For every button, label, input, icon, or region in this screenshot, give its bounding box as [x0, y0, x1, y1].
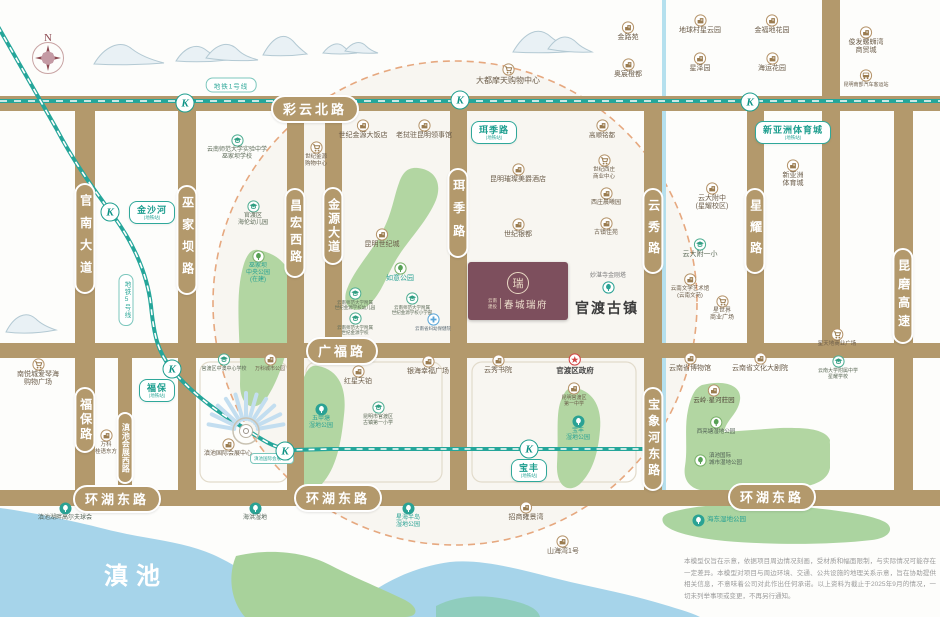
road-guangfu: [0, 343, 940, 358]
building-icon: [263, 352, 276, 365]
property-location-map: N 金路苑奥宸橙都地球村星云园金福地花园星泽园海运花园俊发螺蛳湾 商贸城昆明南部…: [0, 0, 940, 617]
marker-guandu-no1-middle: 昆明官渡区 第一中学: [561, 381, 586, 407]
station-badge-1: 新亚洲体育城(地铁站): [755, 121, 831, 144]
brand-line2: 建投: [488, 304, 497, 310]
marker-nanyuecheng: 南悦城爱琴海 购物广场: [17, 357, 59, 388]
marker-label: 金福地花园: [755, 27, 790, 35]
road-pill-2: 环湖东路: [73, 485, 161, 513]
marker-wujiaba-park: 巫家坝 中央公园 (在建): [246, 249, 270, 285]
tree-teal-solid-icon: [314, 402, 327, 415]
marker-xizhuang-chenxi: 西庄晨曦园: [591, 186, 621, 207]
marker-label: 云秀书院: [484, 367, 512, 375]
tree-teal-solid-icon: [692, 513, 705, 526]
marker-hongxing-tianbo: 红星天铂: [344, 364, 372, 386]
brand-line1: 云南: [488, 298, 497, 304]
station-sub: (地铁站): [479, 135, 509, 140]
building-icon: [512, 162, 525, 175]
building-icon: [694, 13, 707, 26]
road-pill-4: 环湖东路: [728, 483, 816, 511]
marker-yunda-fuzhong: 云大附中 (星耀校区): [696, 181, 729, 212]
marker-haiyun: 海运花园: [758, 51, 786, 73]
marker-label: 巫家坝 中央公园 (在建): [246, 263, 270, 285]
school-icon: [371, 400, 384, 413]
marker-label: 海运花园: [758, 65, 786, 73]
marker-shifan-wujiaba: 云南师范大学实验中学 巫家坝学校: [207, 133, 267, 161]
marker-expo-center: 滇池国际会展中心: [204, 437, 252, 458]
marker-label: 云南省妇幼保健院: [415, 326, 451, 331]
building-icon: [694, 51, 707, 64]
cart-icon: [597, 153, 610, 166]
marker-ruyi-park: 如意公园: [386, 261, 414, 283]
metro-line5-label: 地铁5号线: [119, 274, 134, 326]
marker-junfa: 俊发螺蛳湾 商贸城: [849, 25, 884, 56]
tree-green-icon: [694, 453, 707, 466]
school-icon: [349, 311, 362, 324]
marker-label: 云南省博物馆: [669, 365, 711, 373]
metro-k-mark-1: K: [451, 91, 470, 110]
road-pill-v-0: 官南大道: [74, 183, 95, 294]
road-pill-v-8: 福保路: [74, 387, 95, 453]
marker-baofeng-park: 宝丰 湿地公园: [566, 414, 590, 442]
marker-yinhai-plaza: 银海幸福广场: [407, 354, 449, 376]
marker-label: 奥宸橙都: [614, 71, 642, 79]
marker-jinyuan-mall: 世纪金源 购物中心: [305, 140, 327, 167]
school-icon: [406, 291, 419, 304]
road-pill-0: 彩云北路: [271, 95, 359, 123]
seal-character: 瑞: [513, 275, 524, 291]
marker-label: 昆明璀璨美爵酒店: [490, 176, 546, 184]
tree-teal-solid-icon: [401, 501, 414, 514]
road-pill-v-7: 昆磨高速: [892, 248, 913, 344]
marker-label: 地球村星云园: [679, 27, 721, 35]
building-icon: [596, 118, 609, 131]
marker-label: 世纪西庄 商业中心: [593, 167, 615, 180]
marker-laowo-consulate: 老挝驻昆明领事馆: [396, 118, 452, 140]
marker-xinghai-peninsula: 星海半岛 湿地公园: [396, 501, 420, 529]
marker-label: 昆明官渡区 第一中学: [561, 395, 586, 407]
marker-label: 世纪银都: [504, 231, 532, 239]
station-badge-4: 宝丰(地铁站): [511, 459, 547, 482]
building-icon: [787, 158, 800, 171]
marker-label: 滇池湖畔高尔夫球会: [38, 515, 92, 522]
marker-label: 云南师范大学实验中学 巫家坝学校: [207, 147, 267, 161]
station-name: 福保: [147, 383, 167, 393]
building-icon: [557, 534, 570, 547]
marker-label: 官渡区中澳中心学校: [201, 366, 246, 372]
marker-yunda-xingyao: 云南大学附属中学 星耀学校: [818, 354, 858, 380]
marker-xingshijie: 星世界 商业广场: [710, 294, 734, 322]
building-icon: [684, 351, 697, 364]
disclaimer-text: 本模型仅旨在示意，依据项目周边情况刻画，受材质和幅面限制，与实际情况可能存在一定…: [684, 556, 936, 603]
marker-label: 宝丰 湿地公园: [566, 428, 590, 442]
building-icon: [352, 364, 365, 377]
marker-sjjy-school: 云南师范大学附属 世纪金源学校: [337, 311, 373, 336]
marker-label: 星泽园: [690, 65, 711, 73]
marker-label: 滇池国际 城市湿地公园: [709, 453, 742, 466]
building-icon: [492, 353, 505, 366]
marker-label: 五甲塘 湿地公园: [309, 416, 333, 430]
marker-label: 老挝驻昆明领事馆: [396, 132, 452, 140]
school-icon: [349, 286, 362, 299]
building-icon: [683, 272, 696, 285]
marker-label: 官渡区 海伦幼儿园: [238, 213, 268, 227]
marker-wanke-park: 万科城市公园: [255, 352, 285, 372]
marker-jinfudi: 金福地花园: [755, 13, 790, 35]
building-icon: [99, 428, 112, 441]
road-pill-v-3: 金源大道: [322, 187, 343, 265]
marker-label: 红星天铂: [344, 378, 372, 386]
marker-wujiatang-park: 五甲塘 湿地公园: [309, 402, 333, 430]
marker-yunxiu-shuyuan: 云秀书院: [484, 353, 512, 375]
road-pill-v-10: 宝象河东路: [642, 387, 663, 491]
project-marker-chuncheng-ruifu: 瑞 云南 建投 春城瑞府: [468, 262, 568, 320]
building-icon: [357, 118, 370, 131]
building-icon: [707, 383, 720, 396]
marker-guzhen-primary: 昆明市官渡区 古镇第一小学: [363, 400, 393, 426]
brand-divider: [500, 298, 501, 309]
marker-label: 官渡区政府: [556, 366, 594, 375]
station-sub: (地铁站): [147, 393, 167, 398]
road-pill-1: 广福路: [306, 337, 378, 365]
metro-line1-label: 地铁1号线: [206, 78, 257, 93]
metro-k-mark-3: K: [101, 203, 120, 222]
school-icon: [217, 352, 230, 365]
marker-hailun-kindergarten: 官渡区 海伦幼儿园: [238, 199, 268, 227]
marker-label: 新亚洲 体育城: [783, 172, 804, 189]
marker-xingtiandi: 星天地商业广场: [818, 327, 857, 348]
project-name: 春城瑞府: [504, 297, 548, 311]
cart-icon: [309, 140, 322, 153]
marker-label: 云岭·星河莊园: [693, 397, 734, 405]
marker-dadu-mall: 大都摩天购物中心: [476, 62, 540, 86]
station-badge-2: 金沙河(地铁站): [129, 201, 175, 224]
metro-k-mark-0: K: [176, 94, 195, 113]
road-pill-v-4: 珥季路: [447, 168, 468, 258]
marker-label: 云大附一小: [683, 251, 718, 259]
metro-k-mark-6: K: [520, 440, 539, 459]
marker-yunda-fuyixiao: 云大附一小: [683, 237, 718, 259]
road-pill-v-1: 巫家坝路: [176, 185, 197, 295]
building-icon: [622, 57, 635, 70]
marker-label: 万科 桂语东方: [95, 442, 117, 455]
metro-k-mark-4: K: [163, 360, 182, 379]
road-unnamed-east: [822, 0, 840, 358]
marker-diqiucun: 地球村星云园: [679, 13, 721, 35]
marker-zhaoshang: 招商雍景湾: [509, 500, 544, 522]
building-icon: [520, 500, 533, 513]
marker-label: 金路苑: [618, 34, 639, 42]
building-icon: [422, 354, 435, 367]
station-badge-3: 福保(地铁站): [139, 379, 175, 402]
marker-label: 海洪湿地: [243, 515, 267, 522]
marker-zhongao-school: 官渡区中澳中心学校: [201, 352, 246, 372]
cart-icon: [830, 327, 843, 340]
station-sub: (地铁站): [137, 215, 167, 220]
marker-label: 云南师范大学附属 世纪金源学校幼儿园: [335, 300, 376, 311]
marker-label: 山海湾1号: [547, 548, 579, 556]
compass-north-label: N: [44, 32, 52, 44]
marker-label: 星天地商业广场: [818, 341, 857, 348]
station-name: 宝丰: [519, 463, 539, 473]
marker-label: 西庄晨曦园: [591, 200, 621, 207]
marker-label: 滇池国际会展中心: [204, 451, 252, 458]
building-icon: [766, 51, 779, 64]
marker-xinyazhou-sports: 新亚洲 体育城: [783, 158, 804, 189]
marker-yunling-xinghe: 云岭·星河莊园: [693, 383, 734, 405]
bus-icon: [859, 68, 872, 81]
marker-label: 如意公园: [386, 275, 414, 283]
marker-label: 西亮塘湿地公园: [697, 429, 736, 436]
marker-xizhuang-center: 世纪西庄 商业中心: [593, 153, 615, 180]
brand-small: 云南 建投: [488, 298, 497, 309]
marker-haihong-wetland: 海洪湿地: [243, 501, 267, 522]
metro-k-mark-2: K: [741, 93, 760, 112]
marker-label: 云南文学艺术馆 (云南文苑): [671, 286, 710, 299]
building-icon: [705, 181, 718, 194]
marker-label: 星海半岛 湿地公园: [396, 515, 420, 529]
marker-label: 妙湛寺金刚塔: [590, 273, 626, 280]
marker-shanhaiwan: 山海湾1号: [547, 534, 579, 556]
station-name: 金沙河: [137, 205, 167, 215]
building-icon: [599, 186, 612, 199]
road-pill-v-6: 星耀路: [744, 188, 765, 274]
building-icon: [860, 25, 873, 38]
building-icon: [418, 118, 431, 131]
cart-icon: [715, 294, 728, 307]
tree-teal-outline-icon: [601, 280, 614, 293]
marker-jinluyuan: 金路苑: [618, 20, 639, 42]
marker-label: 星世界 商业广场: [710, 308, 734, 322]
marker-guzhen-jiayuan: 古镇佳苑: [594, 216, 618, 237]
road-pill-v-2: 昌宏西路: [284, 188, 305, 278]
compass: N: [33, 32, 64, 74]
ancient-town-label: 官渡古镇: [575, 298, 639, 318]
marker-xiliangtang-park: 西亮塘湿地公园: [697, 415, 736, 436]
marker-label: 昆明南部汽车客运站: [843, 82, 888, 88]
cart-icon: [32, 357, 45, 370]
marker-label: 世纪金源 购物中心: [305, 154, 327, 167]
marker-label: 海东湿地公园: [707, 516, 746, 524]
marker-label: 云南大学附属中学 星耀学校: [818, 368, 858, 380]
marker-label: 云南师范大学附属 世纪金源学校: [337, 325, 373, 336]
marker-label: 古镇佳苑: [594, 230, 618, 237]
building-icon: [622, 20, 635, 33]
building-icon: [766, 13, 779, 26]
building-icon: [599, 216, 612, 229]
school-icon: [831, 354, 844, 367]
marker-label: 云大附中 (星耀校区): [696, 195, 729, 212]
road-pill-v-9: 滇池会展西路: [117, 412, 134, 484]
station-name: 珥季路: [479, 125, 509, 135]
road-pill-3: 环湖东路: [294, 484, 382, 512]
marker-grand-theater: 云南省文化大剧院: [732, 351, 788, 373]
tree-teal-solid-icon: [248, 501, 261, 514]
lake-label: 滇池: [104, 556, 168, 591]
school-icon: [694, 237, 707, 250]
marker-label: 银海幸福广场: [407, 368, 449, 376]
tree-green-icon: [709, 415, 722, 428]
marker-label: 高顺铭都: [589, 132, 615, 140]
marker-label: 南悦城爱琴海 购物广场: [17, 371, 59, 388]
building-icon: [567, 381, 580, 394]
marker-shijicheng: 昆明世纪城: [365, 227, 400, 249]
school-icon: [230, 133, 243, 146]
marker-xingzeyuan: 星泽园: [690, 51, 711, 73]
marker-label: 万科城市公园: [255, 366, 285, 372]
cart-icon: [502, 62, 515, 75]
marker-shiji-yindu: 世纪银都: [504, 217, 532, 239]
station-sub: (地铁站): [763, 135, 823, 140]
road-wujiaba: [178, 96, 196, 506]
marker-pagoda: 妙湛寺金刚塔: [590, 272, 626, 293]
marker-aochen-chengdu: 奥宸橙都: [614, 57, 642, 79]
marker-label: 云南师范大学附属 世纪金源学校小学部: [392, 305, 433, 316]
marker-label: 昆明市官渡区 古镇第一小学: [363, 414, 393, 426]
marker-dianchi-city-wetland: 滇池国际 城市湿地公园: [694, 452, 742, 466]
marker-guandu-gov: 官渡区政府: [556, 352, 594, 375]
school-icon: [246, 199, 259, 212]
station-badge-0: 珥季路(地铁站): [471, 121, 517, 144]
building-icon: [512, 217, 525, 230]
building-icon: [376, 227, 389, 240]
marker-label: 世纪金源大饭店: [339, 132, 388, 140]
tree-green-icon: [394, 261, 407, 274]
tree-green-icon: [251, 249, 264, 262]
road-pill-v-5: 云秀路: [642, 188, 663, 274]
station-name: 新亚洲体育城: [763, 125, 823, 135]
brand-row: 云南 建投 春城瑞府: [488, 297, 548, 311]
road-caiyun-north: [0, 96, 940, 111]
star-red-icon: [569, 352, 582, 365]
marker-museum: 云南省博物馆: [669, 351, 711, 373]
marker-wanke-guiyu: 万科 桂语东方: [95, 428, 117, 455]
building-icon: [221, 437, 234, 450]
marker-sjjy-kindergarten: 云南师范大学附属 世纪金源学校幼儿园: [335, 286, 376, 311]
east-wetland-right-shape: [763, 428, 830, 478]
building-icon: [754, 351, 767, 364]
marker-label: 云南省文化大剧院: [732, 365, 788, 373]
station-sub: (地铁站): [519, 473, 539, 478]
marker-wenxueguan: 云南文学艺术馆 (云南文苑): [671, 272, 710, 299]
marker-label: 昆明世纪城: [365, 241, 400, 249]
marker-gaoshun: 高顺铭都: [589, 118, 615, 140]
marker-label: 招商雍景湾: [509, 514, 544, 522]
marker-meijue-hotel: 昆明璀璨美爵酒店: [490, 162, 546, 184]
tree-teal-solid-icon: [58, 501, 71, 514]
marker-bus-terminal: 昆明南部汽车客运站: [843, 68, 888, 88]
metro-k-mark-5: K: [276, 442, 295, 461]
marker-haidong-park: 海东湿地公园: [692, 513, 746, 526]
road-erji: [450, 96, 467, 506]
marker-sjjy-primary: 云南师范大学附属 世纪金源学校小学部: [392, 291, 433, 316]
marker-label: 俊发螺蛳湾 商贸城: [849, 39, 884, 56]
marker-label: 大都摩天购物中心: [476, 76, 540, 86]
tree-teal-solid-icon: [571, 414, 584, 427]
brand-seal-icon: 瑞: [507, 272, 529, 294]
